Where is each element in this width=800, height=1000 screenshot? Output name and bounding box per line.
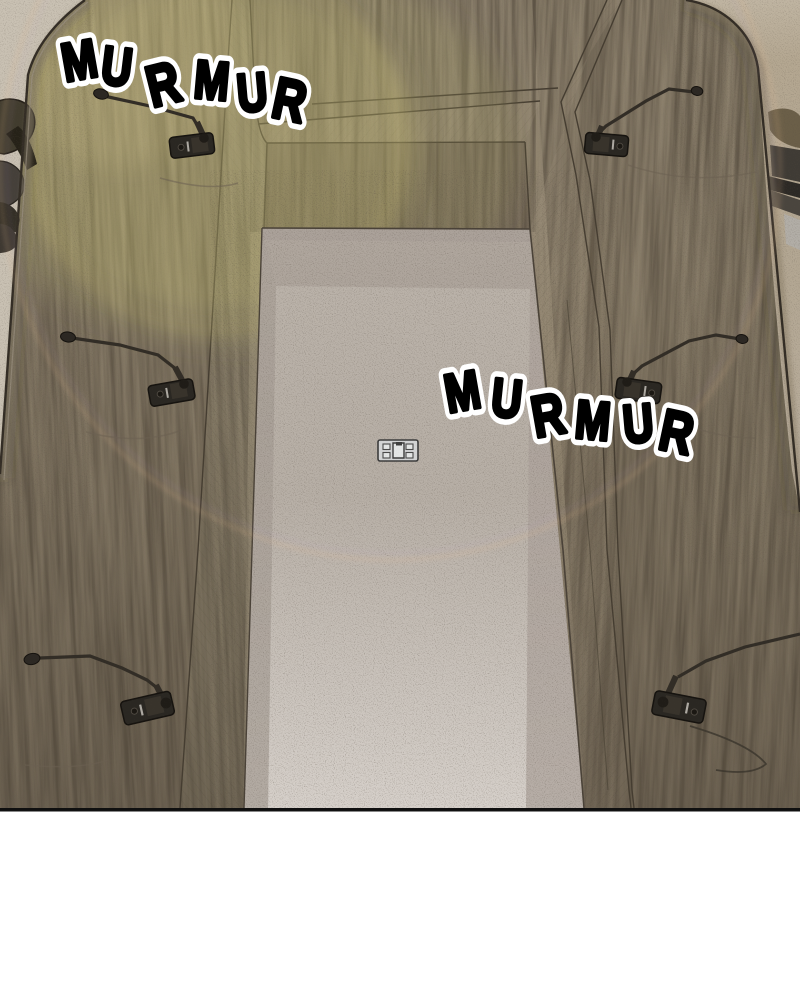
- svg-text:U: U: [234, 62, 270, 125]
- svg-text:U: U: [620, 393, 656, 456]
- svg-text:M: M: [573, 390, 613, 453]
- svg-text:M: M: [192, 50, 232, 113]
- svg-text:U: U: [489, 368, 526, 431]
